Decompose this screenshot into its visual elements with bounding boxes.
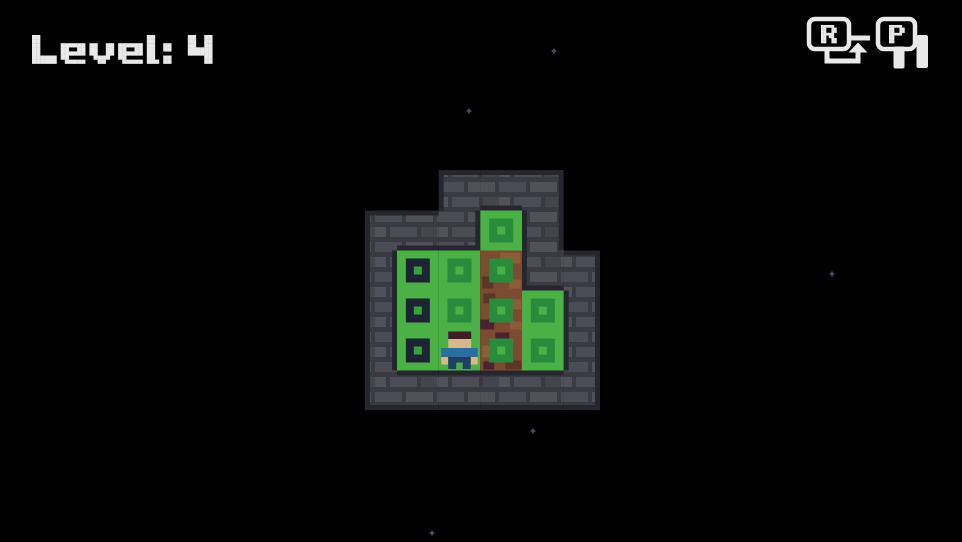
bush-tile [439,291,481,331]
dirt-tile [480,291,522,331]
grass-tile [439,331,481,371]
level-label [28,30,228,70]
pause-button[interactable] [874,12,936,72]
dirt-tile [480,251,522,291]
level-text [28,30,228,70]
game-stage: { "hud": { "level_label": "Level:4", "re… [0,0,962,542]
restart-button[interactable] [804,12,874,72]
game-scene [0,0,962,542]
hole-tile [397,291,439,331]
dirt-tile [480,331,522,371]
hole-tile [397,331,439,371]
bush-tile [522,291,564,331]
bush-tile [522,331,564,371]
restart-icon [804,12,874,72]
bush-tile [439,251,481,291]
pause-icon [874,12,936,72]
bush-tile [480,211,522,251]
puzzle-board [365,170,600,410]
hole-tile [397,251,439,291]
